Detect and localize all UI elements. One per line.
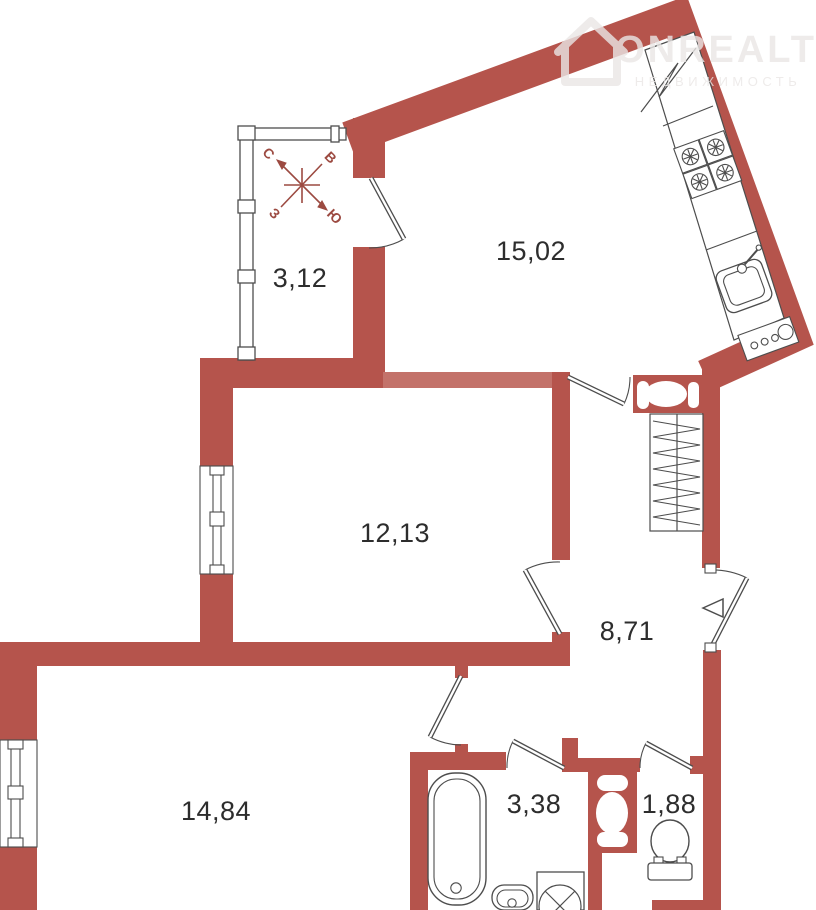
window-cap xyxy=(210,565,224,574)
wall-living-left-upper xyxy=(200,358,233,468)
glazing-joint xyxy=(238,347,255,360)
room-label-wc: 1,88 xyxy=(642,789,697,819)
compass-axis-east xyxy=(302,164,322,185)
compass-label-west: З xyxy=(266,205,284,223)
watermark-tagline: НЕДВИЖИМОСТЬ xyxy=(635,74,802,89)
window-cap xyxy=(210,466,224,475)
wall-wc-door-hinge xyxy=(690,756,704,774)
vent-slot xyxy=(637,381,649,409)
door-bathroom xyxy=(507,741,564,768)
toilet xyxy=(648,820,692,880)
door-living xyxy=(525,562,560,634)
door-kitchen xyxy=(568,377,630,404)
balcony-glazing-left xyxy=(240,128,253,360)
vent-slot xyxy=(597,832,628,847)
wall-hallway-left xyxy=(552,372,570,560)
compass-label-north: С xyxy=(259,144,277,162)
room-label-hallway: 8,71 xyxy=(600,616,655,646)
wardrobe-shelving xyxy=(650,414,703,531)
room-label-kitchen: 15,02 xyxy=(496,236,566,266)
floor-plan-canvas: С В З Ю 3,12 15,02 12,13 8,71 14,84 3,38… xyxy=(0,0,816,910)
compass-label-east: В xyxy=(321,148,339,166)
wall-bedroom-left-lower xyxy=(0,847,37,910)
wall-bathroom-left xyxy=(410,752,428,910)
wall-hallway-left-stub xyxy=(552,632,570,666)
room-label-balcony: 3,12 xyxy=(273,263,328,293)
door-bedroom xyxy=(430,676,461,745)
window-cap xyxy=(8,740,23,749)
vent-oval-bath xyxy=(596,792,628,834)
window-living xyxy=(200,466,233,574)
bathtub xyxy=(428,773,486,905)
compass-rose: С В З Ю xyxy=(259,144,345,227)
glazing-joint xyxy=(238,200,255,213)
compass-axis-west xyxy=(281,185,302,207)
glazing-joint xyxy=(238,270,255,283)
wall-hallway-right-lower xyxy=(703,650,721,910)
wall-bedroom-door-stub2 xyxy=(455,744,468,756)
watermark-brand: ONREALT xyxy=(615,29,816,71)
balcony-glazing-top xyxy=(240,128,346,140)
wall-balcony-divider-top xyxy=(353,118,385,178)
window-divider xyxy=(8,786,23,799)
entrance-arrow xyxy=(703,599,723,617)
door-balcony xyxy=(369,178,404,248)
wall-balcony-divider-bottom xyxy=(353,247,385,388)
washbasin xyxy=(492,885,533,910)
wall-bath-wc-divider xyxy=(588,853,602,910)
room-labels: 3,12 15,02 12,13 8,71 14,84 3,38 1,88 xyxy=(181,236,696,826)
vent-slot xyxy=(688,382,699,408)
door-entrance xyxy=(703,564,747,652)
wall-living-bedroom-divider xyxy=(0,642,565,666)
compass-label-south: Ю xyxy=(324,206,346,228)
floor-plan: С В З Ю 3,12 15,02 12,13 8,71 14,84 3,38… xyxy=(0,0,816,910)
room-label-bathroom: 3,38 xyxy=(507,789,562,819)
room-label-bedroom: 14,84 xyxy=(181,796,251,826)
wall-hallway-right-upper xyxy=(702,366,720,568)
room-label-living-room: 12,13 xyxy=(360,518,430,548)
wall-wc-bottom xyxy=(652,900,721,910)
vent-oval-kitchen xyxy=(645,381,687,407)
window-divider xyxy=(210,512,224,526)
wall-kitchen-bottom xyxy=(383,372,570,388)
wall-bedroom-door-stub xyxy=(455,666,468,678)
vent-slot xyxy=(597,775,628,791)
wall-bedroom-left-upper xyxy=(0,666,37,740)
window-cap xyxy=(8,838,23,847)
door-wc xyxy=(640,743,692,768)
glazing-joint xyxy=(331,126,339,142)
washing-machine xyxy=(537,872,584,910)
window-bedroom xyxy=(0,740,37,847)
glazing-joint xyxy=(238,126,255,140)
